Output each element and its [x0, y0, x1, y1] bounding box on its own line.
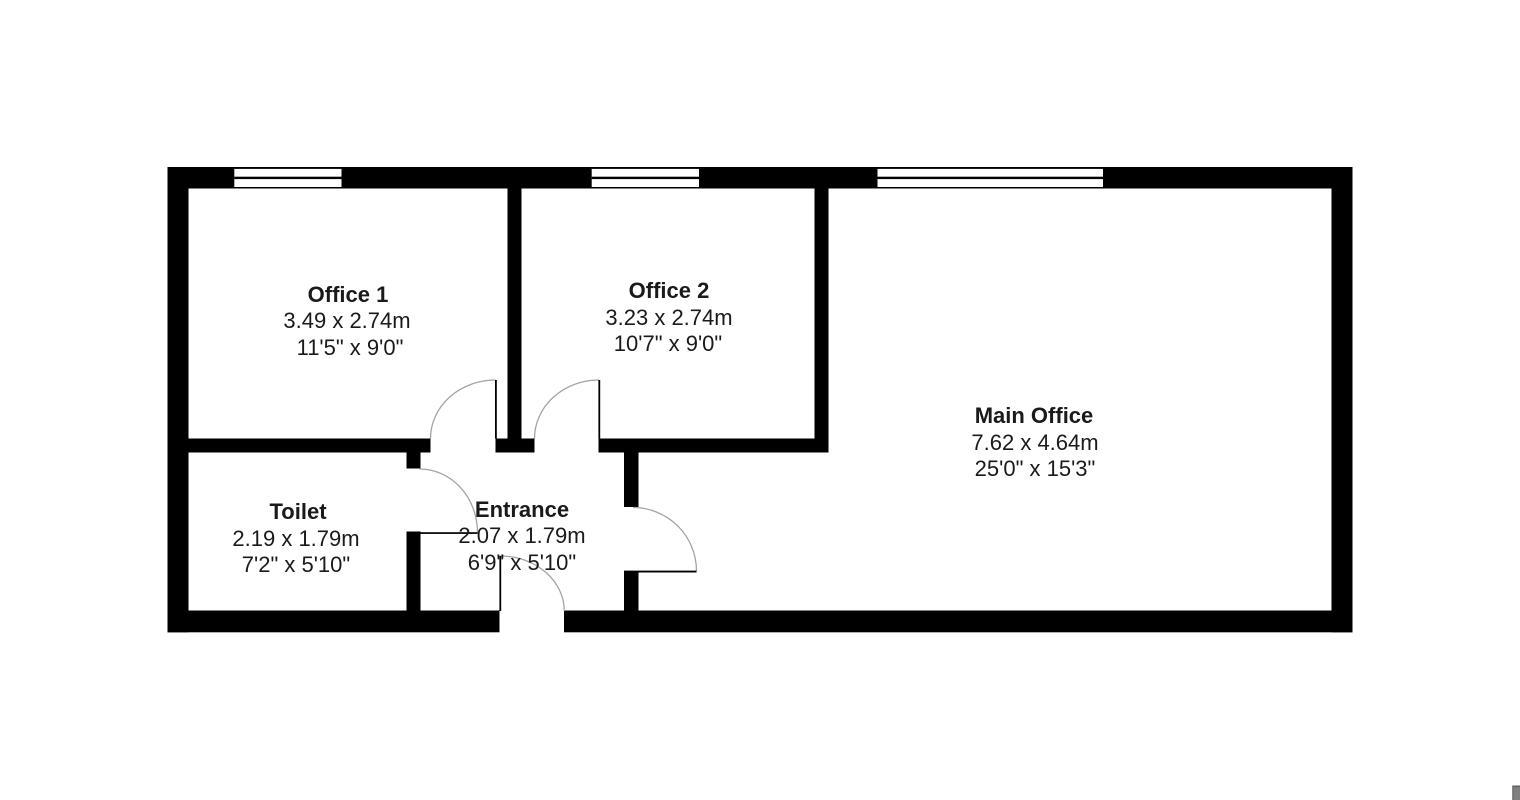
svg-text:3.49 x 2.74m: 3.49 x 2.74m	[283, 308, 410, 333]
svg-text:2.07 x 1.79m: 2.07 x 1.79m	[458, 523, 585, 548]
svg-text:Main Office: Main Office	[975, 403, 1094, 428]
svg-text:3.23 x 2.74m: 3.23 x 2.74m	[605, 305, 732, 330]
svg-text:7.62 x 4.64m: 7.62 x 4.64m	[971, 430, 1098, 455]
svg-text:Toilet: Toilet	[269, 499, 327, 524]
svg-text:25'0" x 15'3": 25'0" x 15'3"	[975, 456, 1096, 481]
svg-text:11'5" x 9'0": 11'5" x 9'0"	[297, 335, 404, 360]
svg-text:6'9" x 5'10": 6'9" x 5'10"	[468, 550, 576, 575]
svg-text:7'2" x 5'10": 7'2" x 5'10"	[242, 552, 350, 577]
svg-text:2.19 x 1.79m: 2.19 x 1.79m	[232, 526, 359, 551]
svg-text:Office 2: Office 2	[629, 278, 710, 303]
svg-text:Entrance: Entrance	[475, 497, 569, 522]
svg-text:Office 1: Office 1	[308, 282, 389, 307]
svg-text:10'7" x 9'0": 10'7" x 9'0"	[614, 331, 722, 356]
